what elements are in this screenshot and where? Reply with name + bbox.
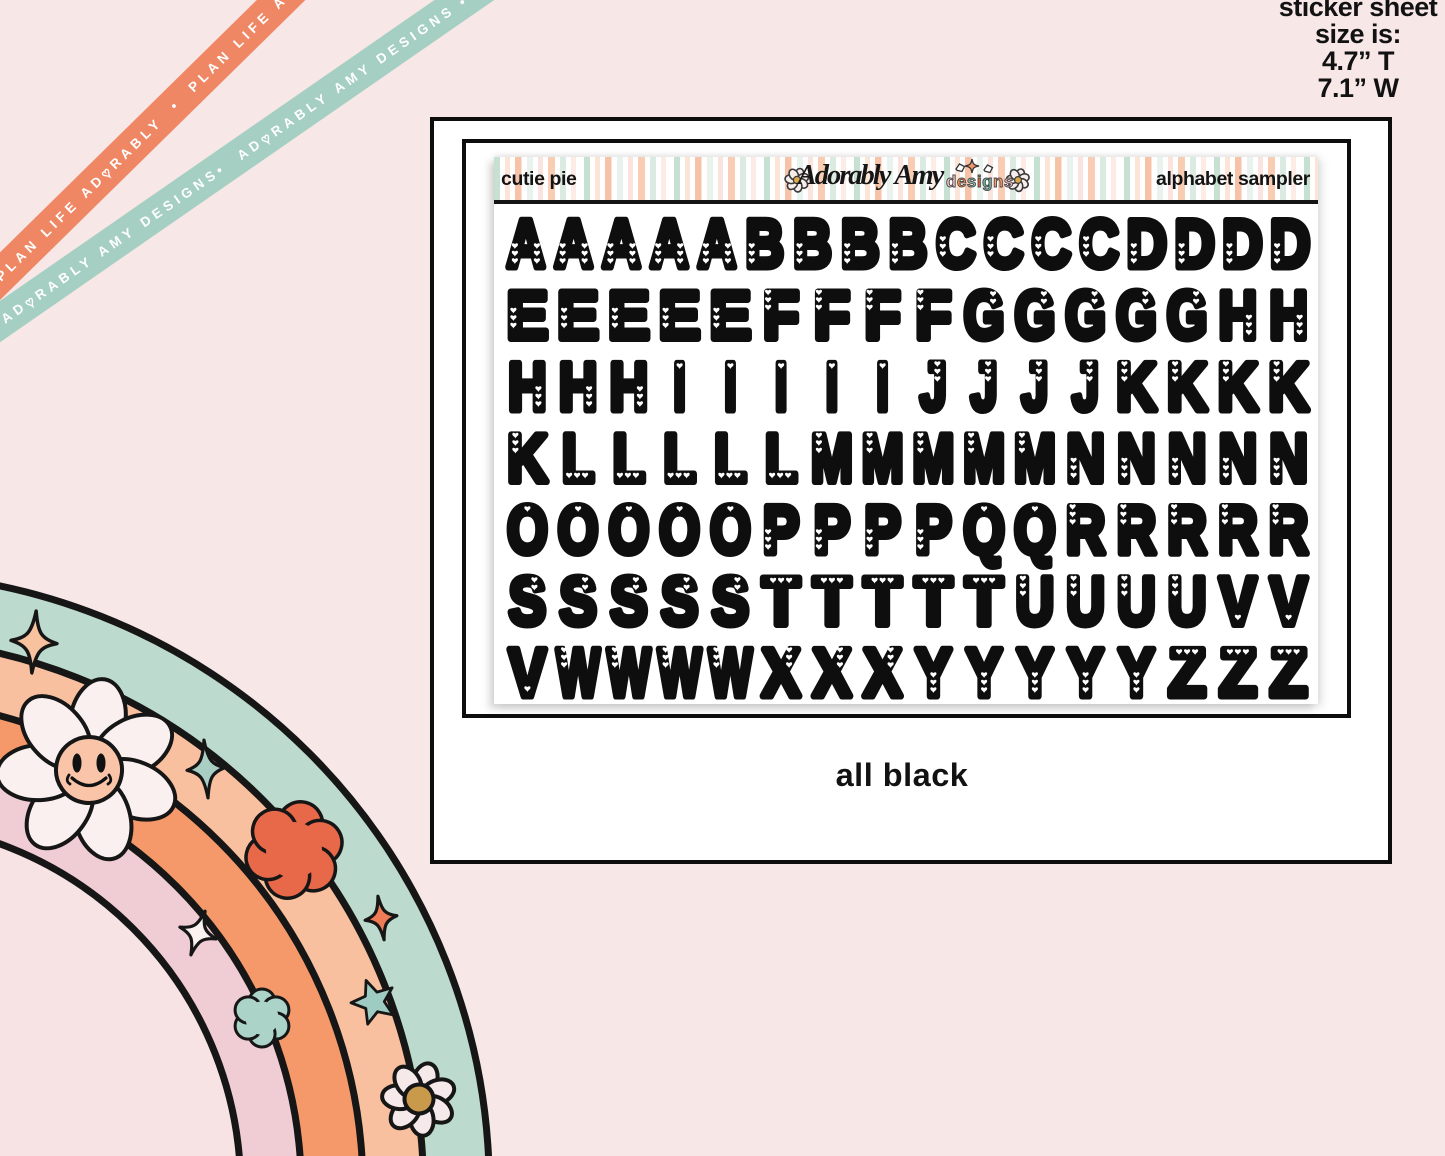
- svg-text:W: W: [709, 636, 752, 704]
- svg-text:E: E: [507, 277, 549, 353]
- svg-text:Z: Z: [1219, 634, 1257, 704]
- svg-text:O: O: [710, 491, 751, 567]
- svg-text:F: F: [865, 278, 901, 354]
- svg-text:M: M: [1014, 420, 1056, 496]
- svg-text:U: U: [1168, 563, 1206, 639]
- svg-text:L: L: [663, 420, 696, 496]
- svg-text:W: W: [658, 636, 701, 704]
- svg-text:Z: Z: [1270, 634, 1308, 704]
- svg-text:K: K: [1116, 350, 1156, 425]
- svg-text:G: G: [1116, 277, 1157, 353]
- svg-text:M: M: [912, 420, 954, 496]
- svg-text:L: L: [613, 420, 646, 496]
- svg-text:S: S: [559, 564, 596, 639]
- svg-text:U: U: [1117, 563, 1155, 639]
- svg-text:R: R: [1066, 492, 1105, 568]
- svg-text:R: R: [1218, 492, 1257, 568]
- svg-text:V: V: [1219, 564, 1257, 639]
- svg-text:R: R: [1269, 492, 1308, 568]
- svg-text:I: I: [724, 350, 736, 426]
- svg-text:T: T: [762, 563, 800, 640]
- svg-text:B: B: [841, 206, 879, 282]
- svg-text:X: X: [762, 635, 800, 704]
- svg-text:F: F: [814, 278, 850, 354]
- svg-text:I: I: [673, 350, 685, 426]
- svg-text:O: O: [659, 491, 700, 567]
- svg-text:M: M: [862, 420, 904, 496]
- svg-text:F: F: [915, 278, 951, 354]
- svg-text:K: K: [1268, 350, 1308, 425]
- svg-text:G: G: [964, 277, 1005, 353]
- svg-text:O: O: [507, 491, 548, 567]
- svg-text:X: X: [813, 635, 851, 704]
- svg-text:B: B: [889, 206, 927, 282]
- svg-text:W: W: [556, 636, 599, 704]
- svg-text:S: S: [712, 564, 749, 639]
- svg-text:I: I: [826, 350, 838, 426]
- svg-text:Q: Q: [963, 492, 1005, 568]
- svg-text:Y: Y: [1067, 635, 1103, 704]
- svg-text:K: K: [1218, 350, 1258, 425]
- svg-text:B: B: [745, 206, 783, 282]
- svg-text:O: O: [609, 491, 650, 567]
- svg-text:T: T: [915, 563, 953, 640]
- svg-text:R: R: [1117, 492, 1156, 568]
- svg-text:I: I: [876, 350, 888, 426]
- svg-text:I: I: [775, 350, 787, 426]
- svg-text:E: E: [710, 277, 752, 353]
- svg-text:B: B: [793, 206, 831, 282]
- svg-text:Y: Y: [1118, 635, 1154, 704]
- svg-text:Y: Y: [1017, 635, 1053, 704]
- svg-text:T: T: [813, 563, 851, 640]
- svg-text:U: U: [1016, 563, 1054, 639]
- svg-text:L: L: [765, 420, 798, 496]
- svg-text:M: M: [963, 420, 1005, 496]
- svg-text:L: L: [562, 420, 595, 496]
- svg-text:J: J: [971, 349, 998, 425]
- svg-text:U: U: [1066, 563, 1104, 639]
- svg-text:S: S: [509, 564, 546, 639]
- svg-text:Q: Q: [1014, 492, 1056, 568]
- svg-text:L: L: [714, 420, 747, 496]
- svg-text:X: X: [864, 635, 902, 704]
- svg-text:V: V: [1270, 564, 1308, 639]
- svg-text:K: K: [1167, 350, 1207, 425]
- svg-text:Y: Y: [966, 635, 1002, 704]
- svg-text:E: E: [557, 277, 599, 353]
- svg-text:F: F: [763, 278, 799, 354]
- svg-text:S: S: [610, 564, 647, 639]
- svg-text:R: R: [1167, 492, 1206, 568]
- svg-text:J: J: [920, 349, 947, 425]
- svg-text:T: T: [965, 563, 1003, 640]
- svg-text:E: E: [659, 277, 701, 353]
- svg-text:J: J: [1072, 349, 1099, 425]
- svg-text:V: V: [509, 636, 547, 704]
- svg-text:G: G: [1015, 277, 1056, 353]
- svg-text:G: G: [1167, 277, 1208, 353]
- svg-text:Z: Z: [1168, 634, 1206, 704]
- svg-text:T: T: [864, 563, 902, 640]
- svg-text:Y: Y: [915, 635, 951, 704]
- svg-text:K: K: [507, 421, 547, 496]
- svg-text:E: E: [608, 277, 650, 353]
- svg-text:O: O: [558, 491, 599, 567]
- svg-text:G: G: [1065, 277, 1106, 353]
- svg-text:W: W: [607, 636, 650, 704]
- svg-text:J: J: [1021, 349, 1048, 425]
- svg-text:M: M: [811, 420, 853, 496]
- svg-text:S: S: [661, 564, 698, 639]
